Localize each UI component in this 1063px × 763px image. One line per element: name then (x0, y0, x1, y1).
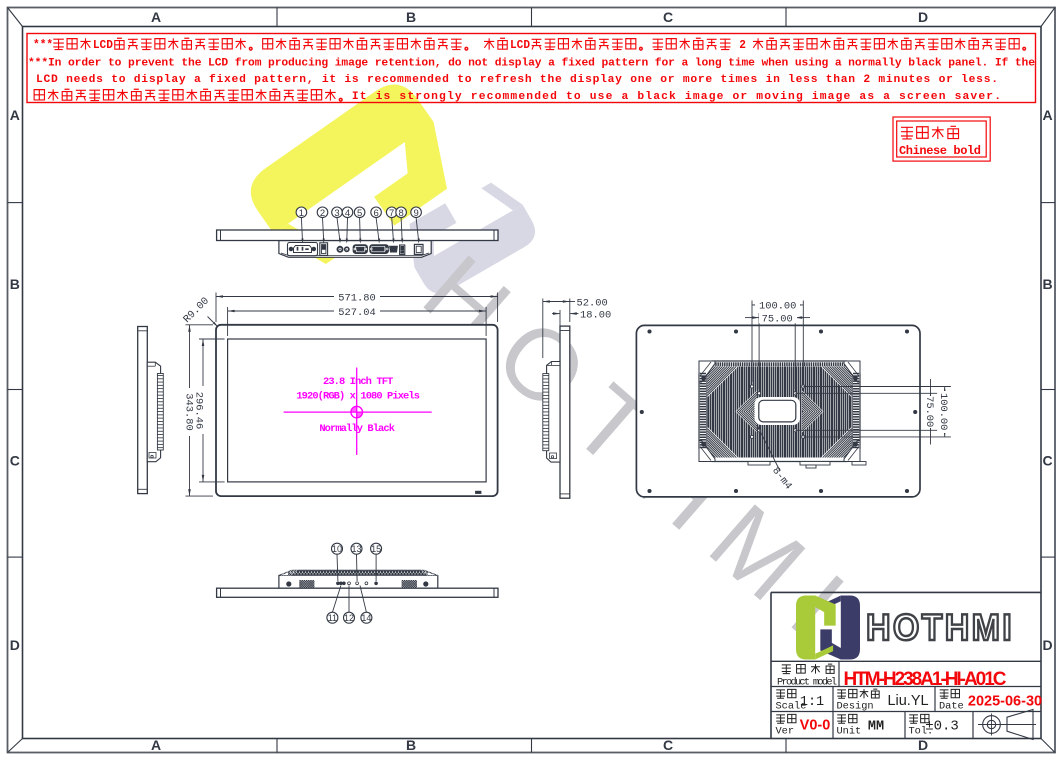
svg-text:±0.3: ±0.3 (925, 719, 959, 735)
svg-text:LCD needs to display a fixed p: LCD needs to display a fixed pattern, it… (36, 74, 998, 86)
svg-text:75.00: 75.00 (762, 314, 793, 326)
svg-text:MM: MM (868, 720, 884, 735)
svg-text:It is strongly recommended to: It is strongly recommended to use a blac… (352, 91, 1001, 103)
svg-text:HOTHMI: HOTHMI (866, 607, 1014, 648)
svg-text:B: B (10, 276, 20, 292)
svg-text:Normally Black: Normally Black (319, 423, 394, 435)
svg-text:B: B (1042, 276, 1052, 292)
svg-text:1920(RGB) x 1080 Pixels: 1920(RGB) x 1080 Pixels (296, 390, 419, 402)
svg-text:75.00: 75.00 (923, 396, 935, 427)
svg-text:Product model: Product model (777, 677, 837, 689)
svg-text:C: C (663, 737, 673, 753)
svg-text:***: *** (33, 40, 53, 52)
svg-text:A: A (1042, 107, 1052, 123)
svg-text:C: C (10, 453, 20, 469)
svg-text:4: 4 (345, 208, 350, 219)
svg-text:7: 7 (389, 208, 394, 219)
svg-text:Ver: Ver (776, 726, 795, 738)
svg-text:13: 13 (351, 544, 361, 554)
svg-text:Design: Design (837, 701, 874, 713)
svg-text:9: 9 (413, 208, 418, 219)
svg-text:***In order to prevent the LCD: ***In order to prevent the LCD from prod… (28, 58, 1035, 70)
svg-text:A: A (151, 9, 161, 25)
svg-text:2: 2 (320, 208, 325, 219)
svg-text:2: 2 (733, 40, 753, 52)
svg-text:18.00: 18.00 (580, 310, 611, 322)
svg-text:12: 12 (344, 613, 354, 623)
svg-text:52.00: 52.00 (577, 298, 608, 310)
svg-text:100.00: 100.00 (759, 300, 796, 312)
svg-text:LCD: LCD (93, 40, 113, 52)
svg-text:5: 5 (357, 208, 362, 219)
svg-text:296.46: 296.46 (192, 392, 204, 429)
svg-text:Chinese bold: Chinese bold (899, 144, 981, 158)
svg-text:8: 8 (398, 208, 403, 219)
svg-text:14: 14 (361, 613, 371, 623)
svg-text:HTM-H238A1-HI-A01C: HTM-H238A1-HI-A01C (844, 669, 1007, 690)
svg-text:2025-06-30: 2025-06-30 (968, 694, 1042, 710)
svg-text:571.80: 571.80 (338, 292, 375, 304)
svg-text:1:1: 1:1 (800, 695, 824, 710)
svg-text:23.8 Inch TFT: 23.8 Inch TFT (323, 376, 393, 388)
svg-text:527.04: 527.04 (338, 307, 375, 319)
svg-text:C: C (1042, 453, 1052, 469)
svg-text:Unit: Unit (837, 726, 862, 738)
svg-text:11: 11 (328, 613, 337, 623)
svg-text:D: D (10, 637, 20, 653)
svg-text:3: 3 (334, 208, 339, 219)
svg-text:D: D (918, 9, 928, 25)
svg-text:A: A (151, 737, 161, 753)
svg-text:V0-0: V0-0 (800, 718, 831, 734)
svg-text:B: B (406, 737, 416, 753)
svg-text:LCD: LCD (510, 40, 530, 52)
svg-text:B: B (406, 9, 416, 25)
svg-text:15: 15 (371, 544, 381, 554)
svg-text:Date: Date (939, 701, 964, 713)
svg-text:A: A (10, 107, 20, 123)
svg-text:Liu.YL: Liu.YL (887, 693, 928, 709)
svg-text:D: D (1042, 637, 1052, 653)
svg-text:C: C (663, 9, 673, 25)
svg-text:D: D (918, 737, 928, 753)
svg-text:1: 1 (299, 208, 304, 219)
svg-text:6: 6 (373, 208, 378, 219)
svg-text:100.00: 100.00 (937, 393, 949, 430)
svg-text:10: 10 (332, 544, 342, 554)
